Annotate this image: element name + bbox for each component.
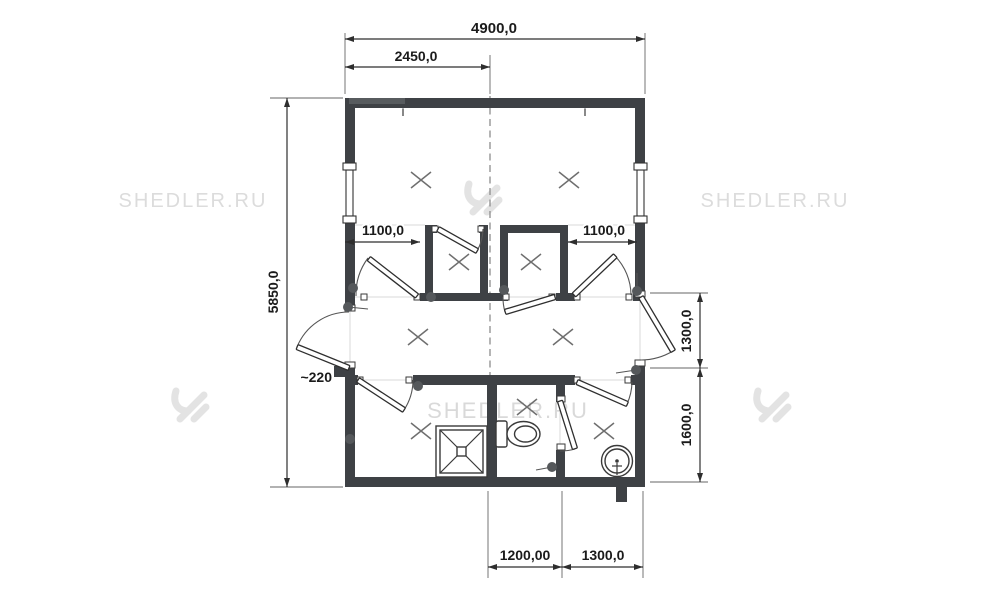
light-x-mark [411,423,431,439]
watermarks: SHEDLER.RU SHEDLER.RU SHEDLER.RU [119,184,850,423]
window-left-cap [343,163,356,170]
door-arc-entry-right [641,351,673,360]
door-arc-entry-left [297,312,349,347]
floor-plan-drawing: SHEDLER.RU SHEDLER.RU SHEDLER.RU [0,0,1000,600]
toilet [496,421,540,447]
light-x-mark [411,172,431,188]
door-leaf-washroom [357,378,406,412]
window-right-cap [634,216,647,223]
wall-closet-left [480,225,488,301]
dim-label-wall-thickness: ~220 [300,369,332,385]
wall-bottom [345,477,645,487]
fitting-dot [413,381,423,391]
wall-right [635,98,645,163]
light-x-mark [594,423,614,439]
wall-closet-right [560,225,568,301]
wall-partition-wc [556,450,565,477]
wall-corridor-bottom [631,375,645,385]
fitting-dot [345,434,355,444]
dim-label-washroom-depth: 1600,0 [678,403,694,446]
light-x-mark [408,329,428,345]
light-x-mark [559,172,579,188]
window-left [346,170,353,216]
floor-plan-page: SHEDLER.RU SHEDLER.RU SHEDLER.RU [0,0,1000,600]
fitting-dot [499,285,509,295]
fitting-dot [426,292,436,302]
shedler-logo-icon [175,391,206,419]
dim-label-overall-depth: 5850,0 [265,270,281,313]
door-arc-washroom [404,380,413,410]
window-right-cap [634,163,647,170]
door-leaf-hall-left [367,257,418,298]
fitting-dot [343,302,353,312]
wall-corridor-bottom [413,375,575,385]
wall-left [345,98,355,163]
door-leaf-entry-right [639,296,676,353]
dim-label-right-inset: 1100,0 [583,222,625,238]
fitting-dot [547,462,557,472]
dim-label-half-width: 2450,0 [395,48,438,64]
dim-label-wc-width: 1200,00 [500,547,551,563]
watermark-text-right: SHEDLER.RU [701,190,850,212]
dim-label-sink-room-width: 1300,0 [582,547,625,563]
fitting-dot [631,365,641,375]
door-arc-sink-room [627,382,632,404]
dim-label-corridor-depth: 1300,0 [678,309,694,352]
door-leaf-closet-left [437,227,479,254]
sink [602,446,633,477]
window-left-cap [343,216,356,223]
light-x-mark [449,254,469,270]
door-leaf-entry-left [296,345,350,371]
wall-corridor-bottom [345,375,358,385]
door-arc-hall-left [356,258,368,296]
window-right [637,170,644,216]
wall-closet-left [425,225,433,301]
lintel-segment [349,98,405,104]
door-arc-hall-right [615,256,631,295]
dim-label-left-inset: 1100,0 [362,222,404,238]
drain-pipe [616,487,627,502]
shower-tray [436,426,487,477]
watermark-text-left: SHEDLER.RU [119,190,268,212]
light-x-mark [553,329,573,345]
fitting-dot [632,286,642,296]
wall-closet-right [500,225,568,233]
door-leaf-hall-right [572,254,617,297]
fitting-dot [348,283,358,293]
light-x-mark [521,254,541,270]
dim-label-overall-width: 4900,0 [471,20,517,37]
shedler-logo-icon [468,184,499,212]
shedler-logo-icon [757,391,788,419]
